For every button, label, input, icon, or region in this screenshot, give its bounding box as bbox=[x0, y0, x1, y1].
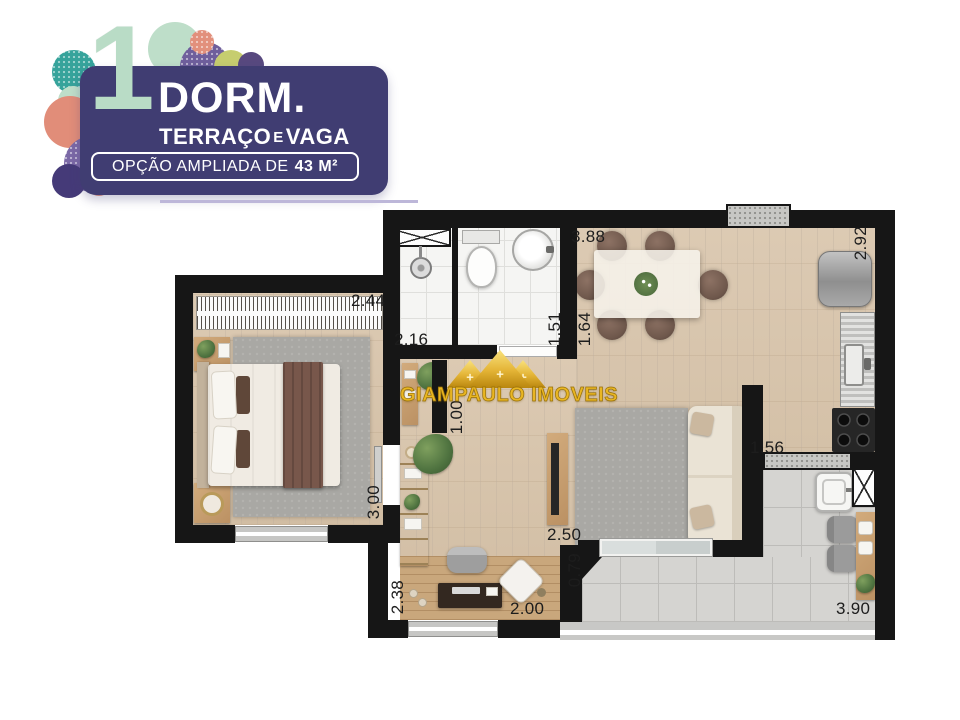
bar-stool bbox=[858, 541, 873, 555]
shower-head bbox=[410, 257, 432, 279]
bed-pillow bbox=[210, 425, 237, 475]
dimension-label: 2.00 bbox=[510, 599, 544, 619]
dimension-label: 2.92 bbox=[851, 226, 871, 260]
bed-throw-blanket bbox=[283, 362, 323, 488]
dimension-label: 2.16 bbox=[394, 330, 428, 350]
living-rug bbox=[575, 408, 688, 545]
watermark-text: GIAMPAULO IMOVEIS bbox=[400, 384, 618, 407]
kitchen-faucet bbox=[864, 358, 871, 370]
logo-subtitle: TERRAÇOEVAGA bbox=[159, 124, 350, 150]
dimension-label: 3.00 bbox=[364, 485, 384, 519]
floor-plan-page: 2.442.161.513.881.642.921.003.002.501.56… bbox=[0, 0, 960, 720]
dimension-label: 3.88 bbox=[571, 227, 605, 247]
office-window bbox=[408, 621, 498, 637]
terrace-glass-railing bbox=[560, 622, 875, 640]
dimension-label: 1.64 bbox=[575, 312, 595, 346]
dimension-label: 2.44 bbox=[351, 291, 385, 311]
kitchen-sink-basin bbox=[844, 344, 864, 386]
stove-cooktop bbox=[832, 408, 875, 452]
round-mirror bbox=[200, 492, 224, 516]
desk-chair bbox=[447, 547, 487, 573]
dimension-label: 3.90 bbox=[836, 599, 870, 619]
dining-window-sill bbox=[726, 204, 791, 228]
laundry-tank-basin bbox=[822, 479, 846, 505]
bar-stool bbox=[858, 521, 873, 535]
toilet-tank bbox=[462, 230, 500, 244]
sofa-pillow bbox=[689, 504, 715, 530]
side-table-dot bbox=[537, 588, 546, 597]
logo-underline bbox=[160, 200, 418, 203]
desk-cup bbox=[409, 589, 418, 598]
dimension-label: 2.38 bbox=[388, 580, 408, 614]
sofa-pillow bbox=[689, 411, 714, 436]
terrace-chair bbox=[827, 516, 858, 543]
shelf-frame bbox=[404, 518, 422, 530]
sink-faucet bbox=[546, 246, 554, 253]
toilet-bowl bbox=[466, 246, 497, 288]
terrace-chair bbox=[827, 545, 858, 572]
desk-cup bbox=[418, 598, 427, 607]
logo-title: DORM. bbox=[158, 74, 306, 123]
dimension-label: 0.79 bbox=[565, 553, 585, 587]
dimension-label: 1.56 bbox=[750, 438, 784, 458]
bathroom-door bbox=[499, 346, 557, 357]
bedroom-window bbox=[235, 526, 328, 542]
tv bbox=[551, 443, 559, 515]
bed-pillow bbox=[211, 370, 237, 419]
utility-shaft bbox=[852, 467, 876, 507]
shower-arm bbox=[419, 246, 422, 259]
logo-number: 1 bbox=[88, 8, 155, 128]
dimension-label: 2.50 bbox=[547, 525, 581, 545]
nightstand-photo-frame bbox=[218, 343, 230, 358]
dining-chair bbox=[698, 270, 728, 300]
desk-keyboard bbox=[452, 587, 480, 594]
console-item bbox=[404, 370, 416, 379]
shower-box bbox=[393, 228, 451, 247]
bed-accent-pillow bbox=[236, 430, 250, 468]
logo-banner: OPÇÃO AMPLIADA DE43 M² bbox=[91, 152, 359, 181]
dimension-label: 1.51 bbox=[545, 312, 565, 346]
table-centerpiece-flowers bbox=[634, 272, 658, 296]
logo-circle-decoration bbox=[190, 30, 214, 54]
desk-paper bbox=[486, 587, 498, 596]
terrace-sliding-door bbox=[600, 539, 712, 556]
bed-accent-pillow bbox=[236, 376, 250, 414]
